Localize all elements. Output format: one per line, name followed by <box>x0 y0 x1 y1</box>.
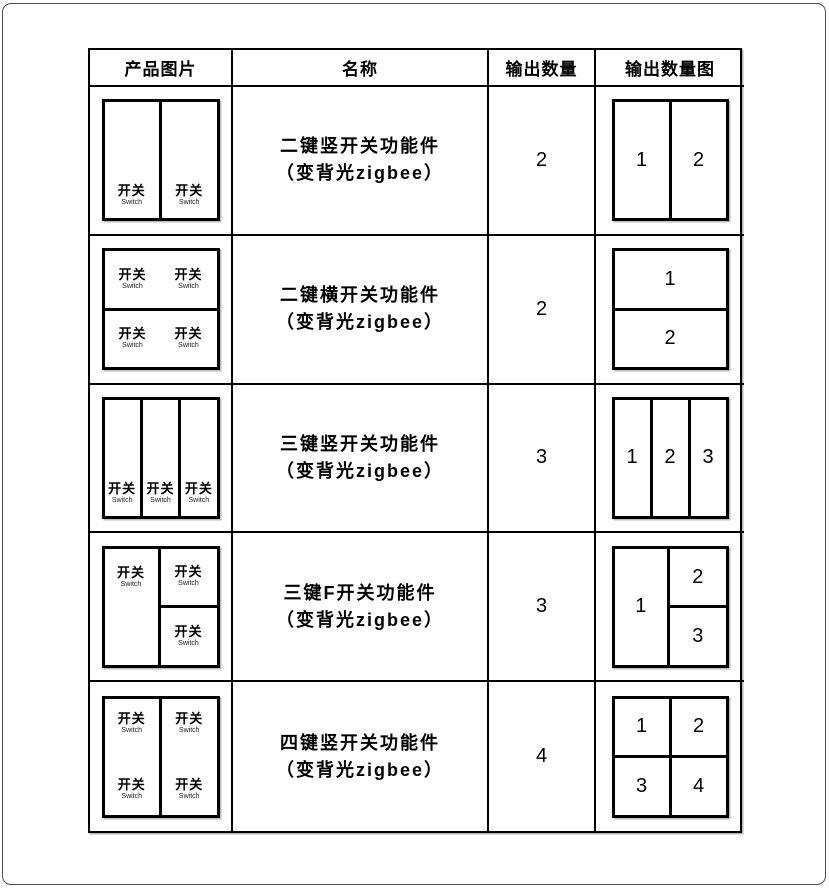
count-cell-row2: 2 <box>489 236 596 385</box>
header-output-count: 输出数量 <box>489 50 596 87</box>
product-name-line1: 三键F开关功能件 <box>276 580 444 607</box>
switch-label-en: Switch <box>175 727 203 735</box>
switch-key: 开关 Switch <box>105 400 140 516</box>
product-mock-3key-F: 开关 Switch 开关 Switch 开关 Switch <box>102 546 220 668</box>
diagram-cell-row4: 1 2 3 <box>596 533 744 682</box>
switch-label-en: Switch <box>174 342 202 350</box>
diagram-zone: 4 <box>669 758 726 815</box>
diagram-cell-row1: 1 2 <box>596 87 744 236</box>
switch-key-label: 开关 Switch <box>118 184 146 207</box>
output-count: 4 <box>536 745 547 768</box>
name-cell-row5: 四键竖开关功能件 （变背光zigbee） <box>233 682 489 831</box>
product-name: 二键横开关功能件 （变背光zigbee） <box>276 282 444 336</box>
product-mock-2key-horizontal: 开关 Switch 开关 Switch 开关 Switch 开关 Switch <box>102 248 220 370</box>
switch-label-zh: 开关 <box>118 268 146 283</box>
diagram-zone: 3 <box>670 605 726 665</box>
product-name-line1: 三键竖开关功能件 <box>276 431 444 458</box>
switch-label-zh: 开关 <box>117 566 145 581</box>
switch-key: 开关 Switch <box>140 400 178 516</box>
name-cell-row4: 三键F开关功能件 （变背光zigbee） <box>233 533 489 682</box>
switch-key-label: 开关 Switch <box>175 184 203 207</box>
switch-key-label: 开关 Switch <box>174 268 202 291</box>
switch-key-label: 开关 Switch <box>117 566 145 589</box>
switch-label-zh: 开关 <box>175 778 203 793</box>
header-product-image: 产品图片 <box>90 50 233 87</box>
output-diagram-F: 1 2 3 <box>612 546 729 668</box>
switch-label-zh: 开关 <box>108 482 136 497</box>
diagram-zone: 2 <box>670 549 726 606</box>
product-image-cell-row4: 开关 Switch 开关 Switch 开关 Switch <box>90 533 233 682</box>
output-count: 2 <box>536 298 547 321</box>
switch-key-label: 开关 Switch <box>118 778 146 801</box>
header-output-diagram: 输出数量图 <box>596 50 744 87</box>
switch-label-zh: 开关 <box>174 327 202 342</box>
diagram-row: 3 4 <box>615 755 726 815</box>
name-cell-row2: 二键横开关功能件 （变背光zigbee） <box>233 236 489 385</box>
switch-key-label: 开关 Switch <box>118 327 146 350</box>
switch-label-zh: 开关 <box>118 778 146 793</box>
diagram-cell-row5: 1 2 3 4 <box>596 682 744 831</box>
product-name-line1: 二键横开关功能件 <box>276 282 444 309</box>
switch-key-label: 开关 Switch <box>108 482 136 505</box>
header-name: 名称 <box>233 50 489 87</box>
switch-label-en: Switch <box>108 497 136 505</box>
switch-label-zh: 开关 <box>118 184 146 199</box>
output-diagram-2-horizontal: 1 2 <box>612 248 729 370</box>
switch-key: 开关 Switch <box>178 400 216 516</box>
output-count: 3 <box>536 446 547 469</box>
product-name-line2: （变背光zigbee） <box>276 607 444 634</box>
product-name-line2: （变背光zigbee） <box>276 160 444 187</box>
product-mock-2key-vertical: 开关 Switch 开关 Switch <box>102 99 220 221</box>
switch-label-en: Switch <box>174 283 202 291</box>
switch-key: 开关 Switch <box>105 102 160 218</box>
count-cell-row3: 3 <box>489 385 596 534</box>
output-count: 3 <box>536 595 547 618</box>
switch-label-en: Switch <box>118 199 146 207</box>
product-name-line2: （变背光zigbee） <box>276 309 444 336</box>
switch-label-en: Switch <box>118 342 146 350</box>
switch-label-zh: 开关 <box>185 482 213 497</box>
switch-key: 开关 Switch <box>161 549 217 606</box>
diagram-zone: 2 <box>615 308 726 368</box>
switch-key-label: 开关 Switch <box>174 327 202 350</box>
switch-label-zh: 开关 <box>175 184 203 199</box>
switch-label-en: Switch <box>118 727 146 735</box>
product-name-line2: （变背光zigbee） <box>276 458 444 485</box>
switch-key: 开关 Switch 开关 Switch <box>159 699 217 815</box>
diagram-right-column: 2 3 <box>670 549 726 665</box>
switch-label-en: Switch <box>174 580 202 588</box>
switch-key-label: 开关 Switch <box>118 268 146 291</box>
diagram-zone: 3 <box>615 758 669 815</box>
switch-label-en: Switch <box>175 793 203 801</box>
count-cell-row4: 3 <box>489 533 596 682</box>
product-name: 四键竖开关功能件 （变背光zigbee） <box>276 730 444 784</box>
switch-label-zh: 开关 <box>118 712 146 727</box>
product-name-line1: 四键竖开关功能件 <box>276 730 444 757</box>
switch-label-zh: 开关 <box>175 712 203 727</box>
switch-key-label: 开关 Switch <box>174 565 202 588</box>
diagram-cell-row3: 1 2 3 <box>596 385 744 534</box>
switch-label-en: Switch <box>175 199 203 207</box>
switch-label-en: Switch <box>118 793 146 801</box>
diagram-cell-row2: 1 2 <box>596 236 744 385</box>
count-cell-row5: 4 <box>489 682 596 831</box>
product-image-cell-row5: 开关 Switch 开关 Switch 开关 Switch 开关 Switch <box>90 682 233 831</box>
diagram-zone: 1 <box>615 549 671 665</box>
output-diagram-2-vertical: 1 2 <box>612 99 729 221</box>
diagram-zone: 1 <box>615 102 669 218</box>
product-image-cell-row2: 开关 Switch 开关 Switch 开关 Switch 开关 Switch <box>90 236 233 385</box>
switch-label-zh: 开关 <box>118 327 146 342</box>
switch-key-label: 开关 Switch <box>185 482 213 505</box>
name-cell-row3: 三键竖开关功能件 （变背光zigbee） <box>233 385 489 534</box>
diagram-zone: 1 <box>615 400 650 516</box>
output-diagram-3-vertical: 1 2 3 <box>612 397 729 519</box>
product-name: 三键竖开关功能件 （变背光zigbee） <box>276 431 444 485</box>
switch-product-spec-table: 产品图片 名称 输出数量 输出数量图 开关 Switch 开关 Switch 二… <box>88 48 742 833</box>
switch-key: 开关 Switch 开关 Switch <box>105 251 217 308</box>
switch-key: 开关 Switch 开关 Switch <box>105 308 217 368</box>
product-image-cell-row1: 开关 Switch 开关 Switch <box>90 87 233 236</box>
switch-label-en: Switch <box>146 497 174 505</box>
switch-label-en: Switch <box>118 283 146 291</box>
diagram-zone: 2 <box>650 400 688 516</box>
switch-key-label: 开关 Switch <box>146 482 174 505</box>
switch-label-en: Switch <box>174 640 202 648</box>
switch-label-en: Switch <box>185 497 213 505</box>
switch-key-column: 开关 Switch 开关 Switch <box>161 549 217 665</box>
switch-key-label: 开关 Switch <box>174 625 202 648</box>
switch-label-zh: 开关 <box>146 482 174 497</box>
switch-label-zh: 开关 <box>174 268 202 283</box>
count-cell-row1: 2 <box>489 87 596 236</box>
diagram-zone: 3 <box>688 400 726 516</box>
output-count: 2 <box>536 149 547 172</box>
product-mock-4key: 开关 Switch 开关 Switch 开关 Switch 开关 Switch <box>102 696 220 818</box>
product-image-cell-row3: 开关 Switch 开关 Switch 开关 Switch <box>90 385 233 534</box>
product-name: 三键F开关功能件 （变背光zigbee） <box>276 580 444 634</box>
switch-key: 开关 Switch 开关 Switch <box>105 699 160 815</box>
switch-key-label: 开关 Switch <box>175 712 203 735</box>
output-diagram-2x2: 1 2 3 4 <box>612 696 729 818</box>
diagram-zone: 1 <box>615 699 669 756</box>
switch-key: 开关 Switch <box>105 549 161 665</box>
product-name-line1: 二键竖开关功能件 <box>276 133 444 160</box>
diagram-zone: 2 <box>669 102 726 218</box>
switch-key-label: 开关 Switch <box>118 712 146 735</box>
product-mock-3key-vertical: 开关 Switch 开关 Switch 开关 Switch <box>102 397 220 519</box>
product-name: 二键竖开关功能件 （变背光zigbee） <box>276 133 444 187</box>
name-cell-row1: 二键竖开关功能件 （变背光zigbee） <box>233 87 489 236</box>
switch-label-zh: 开关 <box>174 625 202 640</box>
diagram-row: 1 2 <box>615 699 726 756</box>
switch-label-zh: 开关 <box>174 565 202 580</box>
switch-key: 开关 Switch <box>159 102 217 218</box>
switch-label-en: Switch <box>117 581 145 589</box>
switch-key: 开关 Switch <box>161 605 217 665</box>
switch-key-label: 开关 Switch <box>175 778 203 801</box>
product-name-line2: （变背光zigbee） <box>276 757 444 784</box>
diagram-zone: 2 <box>669 699 726 756</box>
diagram-zone: 1 <box>615 251 726 308</box>
